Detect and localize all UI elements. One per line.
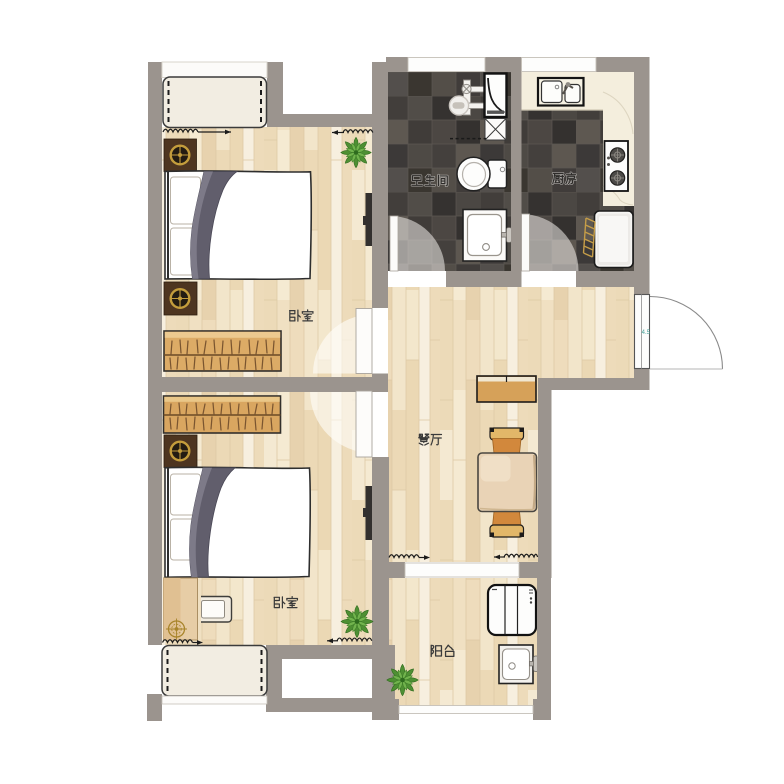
svg-text:4.5: 4.5: [642, 329, 651, 336]
